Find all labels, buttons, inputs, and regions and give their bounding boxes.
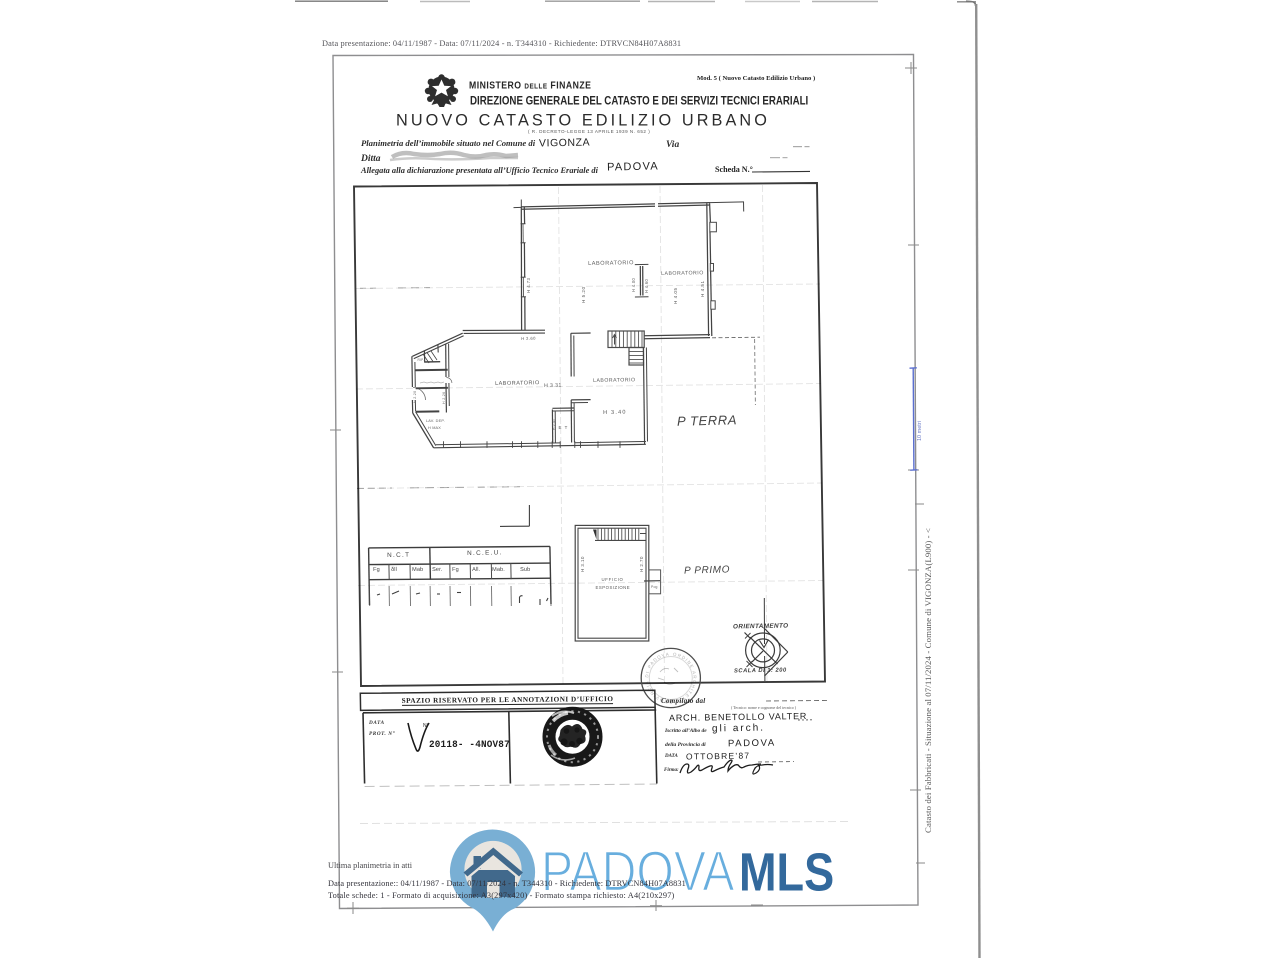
svg-text:N°: N°: [423, 723, 429, 729]
svg-text:MLS: MLS: [739, 842, 834, 903]
